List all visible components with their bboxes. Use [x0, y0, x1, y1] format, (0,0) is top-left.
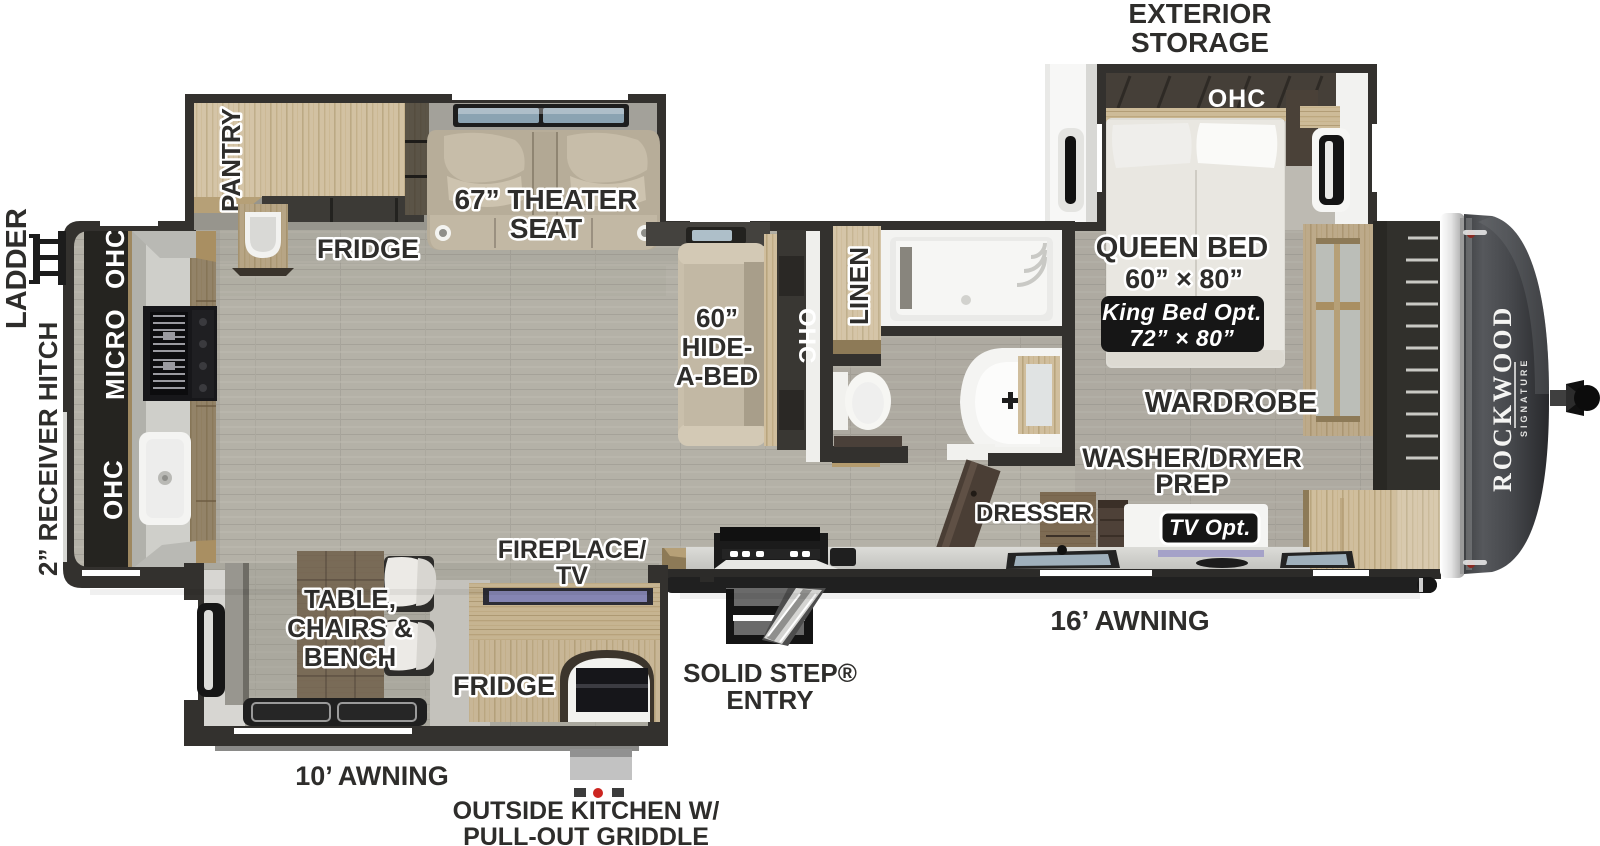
svg-text:OUTSIDE KITCHEN W/: OUTSIDE KITCHEN W/	[453, 797, 720, 825]
svg-text:LINEN: LINEN	[844, 247, 874, 325]
svg-text:60”: 60”	[696, 303, 738, 333]
svg-text:STORAGE: STORAGE	[1131, 27, 1269, 58]
svg-text:TV: TV	[556, 562, 588, 590]
svg-text:FRIDGE: FRIDGE	[317, 234, 419, 264]
svg-text:10’ AWNING: 10’ AWNING	[295, 761, 449, 791]
svg-text:LADDER: LADDER	[1, 208, 33, 329]
svg-text:FIREPLACE/: FIREPLACE/	[498, 536, 647, 564]
svg-text:TABLE,: TABLE,	[304, 584, 396, 614]
svg-text:OHC: OHC	[793, 308, 820, 364]
svg-text:60” × 80”: 60” × 80”	[1125, 264, 1243, 294]
svg-text:16’ AWNING: 16’ AWNING	[1050, 605, 1209, 636]
svg-text:MICRO: MICRO	[100, 308, 130, 400]
svg-text:SOLID STEP®: SOLID STEP®	[683, 658, 857, 688]
svg-text:72” × 80”: 72” × 80”	[1130, 325, 1235, 351]
svg-text:2” RECEIVER HITCH: 2” RECEIVER HITCH	[33, 322, 63, 576]
svg-text:QUEEN BED: QUEEN BED	[1096, 232, 1268, 264]
svg-text:EXTERIOR: EXTERIOR	[1128, 0, 1271, 29]
svg-text:OHC: OHC	[1208, 85, 1267, 113]
svg-text:FRIDGE: FRIDGE	[453, 671, 555, 701]
svg-text:WARDROBE: WARDROBE	[1145, 387, 1317, 419]
svg-text:PREP: PREP	[1155, 469, 1229, 499]
svg-text:PANTRY: PANTRY	[216, 108, 246, 212]
svg-text:TV Opt.: TV Opt.	[1169, 515, 1251, 540]
svg-text:SIGNATURE: SIGNATURE	[1519, 358, 1529, 437]
svg-text:CHAIRS &: CHAIRS &	[287, 613, 413, 643]
svg-text:ENTRY: ENTRY	[726, 685, 813, 715]
svg-text:OHC: OHC	[98, 459, 128, 520]
svg-text:BENCH: BENCH	[304, 642, 396, 672]
svg-text:King Bed Opt.: King Bed Opt.	[1102, 299, 1262, 325]
svg-text:DRESSER: DRESSER	[976, 500, 1092, 527]
svg-text:ROCKWOOD: ROCKWOOD	[1488, 305, 1517, 492]
svg-text:67” THEATER: 67” THEATER	[454, 184, 637, 215]
svg-text:SEAT: SEAT	[510, 213, 583, 244]
svg-text:PULL-OUT GRIDDLE: PULL-OUT GRIDDLE	[463, 823, 709, 846]
svg-text:OHC: OHC	[100, 228, 130, 289]
svg-text:HIDE-: HIDE-	[682, 332, 753, 362]
svg-text:A-BED: A-BED	[676, 361, 758, 391]
